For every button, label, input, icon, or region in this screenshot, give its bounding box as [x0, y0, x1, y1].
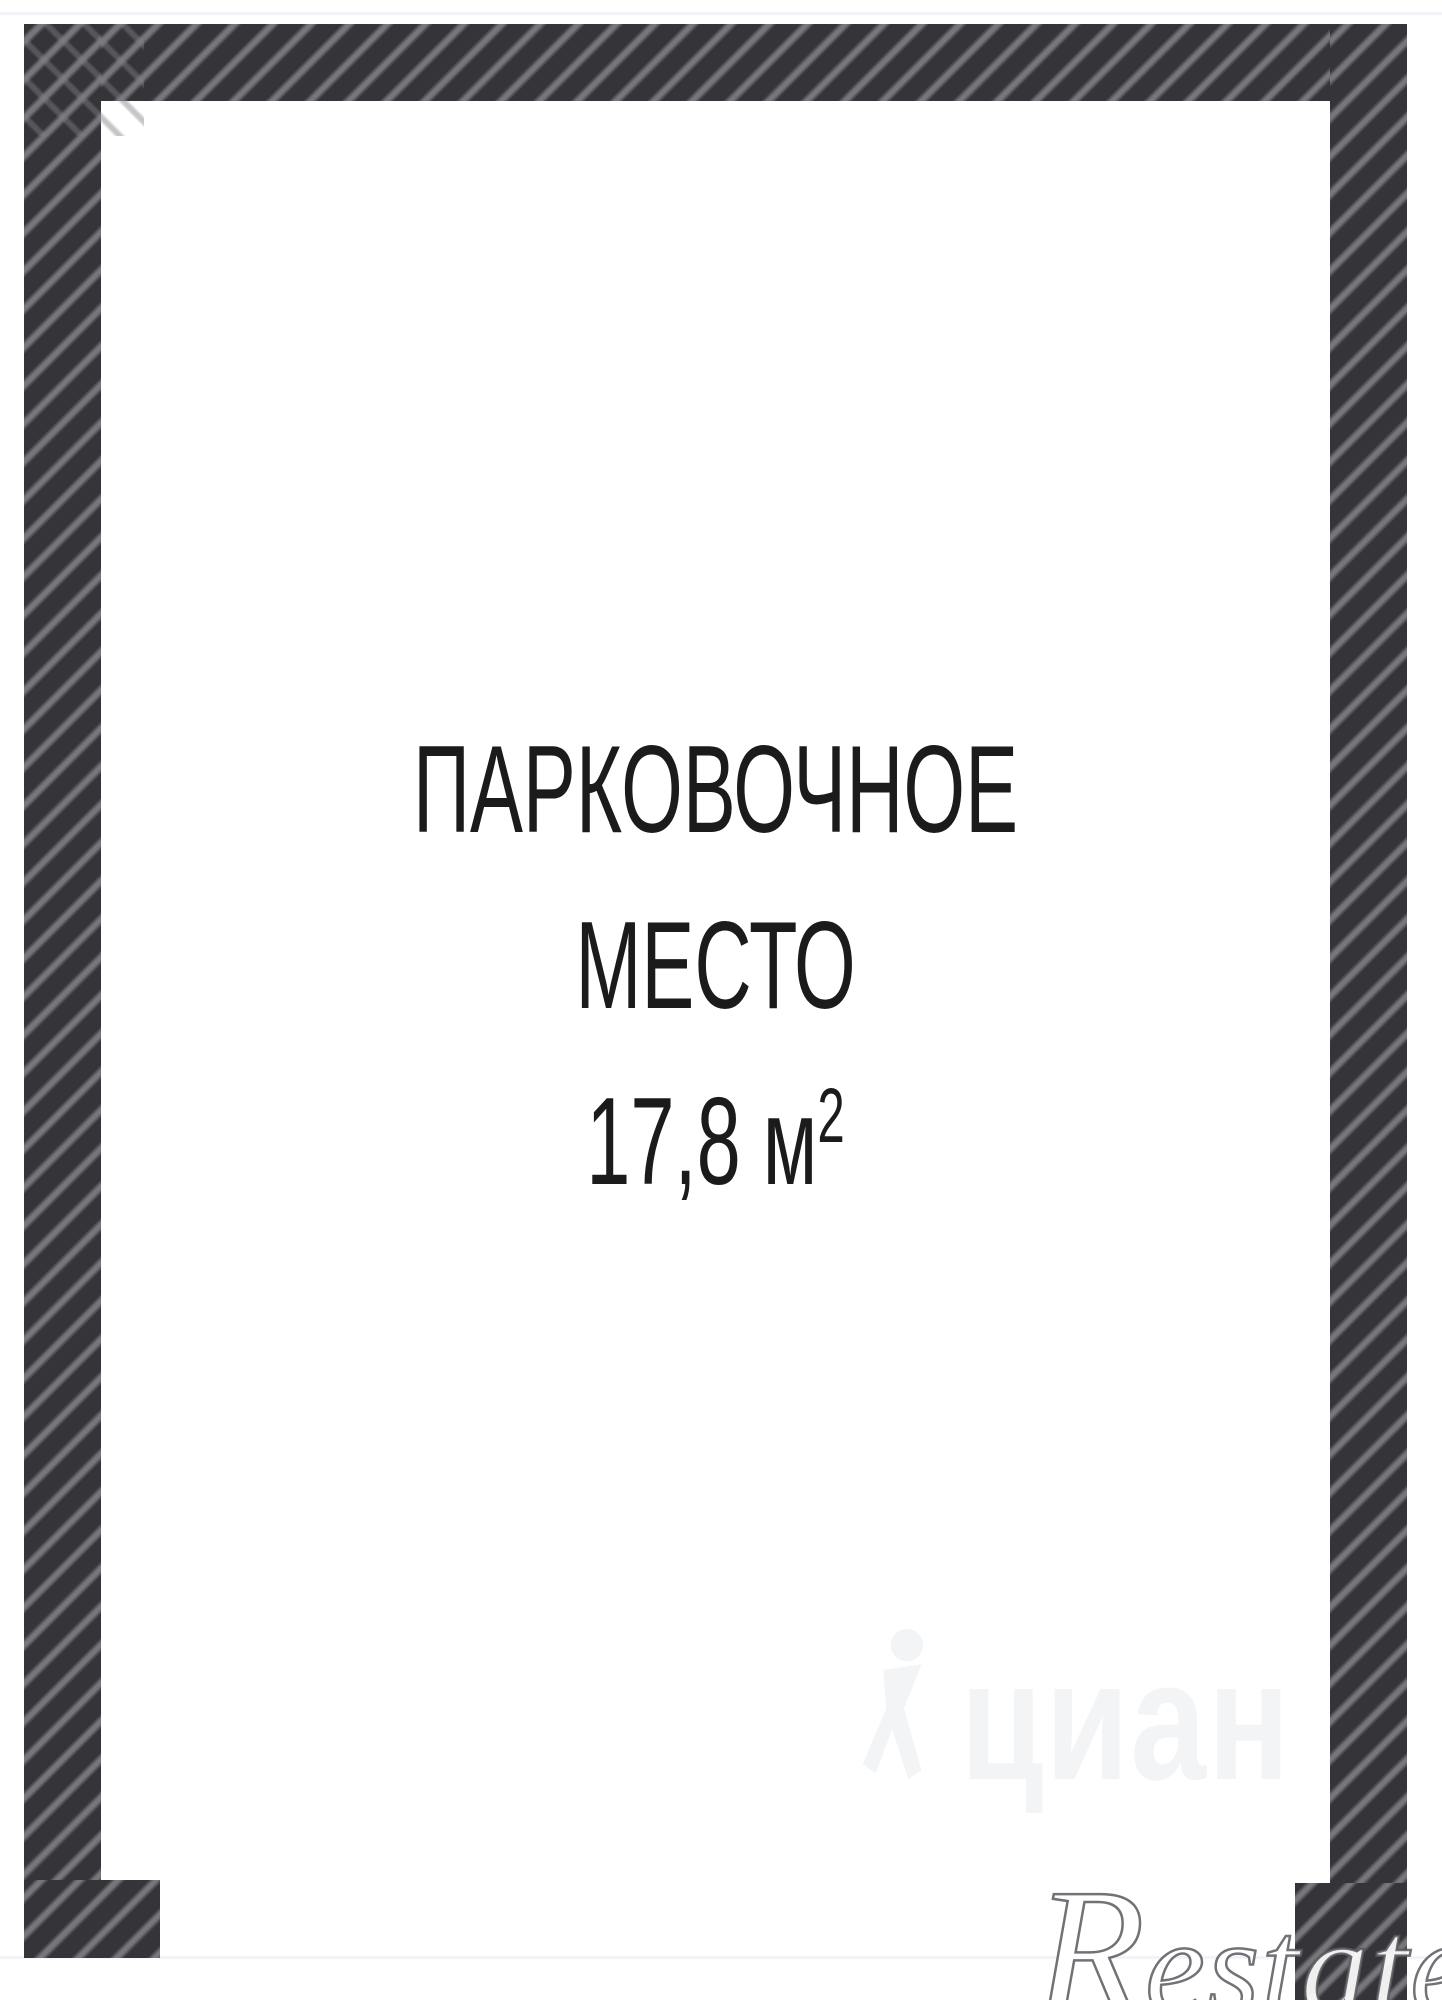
wall-top	[26, 24, 1405, 101]
parking-floorplan: ПАРКОВОЧНОЕ МЕСТО 17,8 м2 циан Restate	[0, 0, 1442, 2000]
room-label: ПАРКОВОЧНОЕ МЕСТО 17,8 м2	[322, 702, 1109, 1246]
wall-left	[24, 24, 101, 1958]
restate-watermark: Restate	[1035, 1862, 1442, 2000]
restate-initial: R	[1035, 1862, 1145, 2000]
cian-watermark: циан	[852, 1626, 1374, 1788]
plan-top-edge-line	[0, 11, 1442, 16]
room-label-line1: ПАРКОВОЧНОЕ	[322, 702, 1109, 878]
cian-watermark-text: циан	[960, 1636, 1291, 1806]
wall-corner-crosshatch	[26, 24, 144, 136]
wall-stub-bottom-left	[24, 1880, 160, 1958]
room-area-label: 17,8 м2	[322, 1054, 1109, 1246]
area-superscript: 2	[817, 1073, 844, 1159]
restate-rest: estate	[1145, 1900, 1442, 2000]
room-label-line2: МЕСТО	[322, 878, 1109, 1054]
cian-person-icon	[852, 1626, 944, 1788]
